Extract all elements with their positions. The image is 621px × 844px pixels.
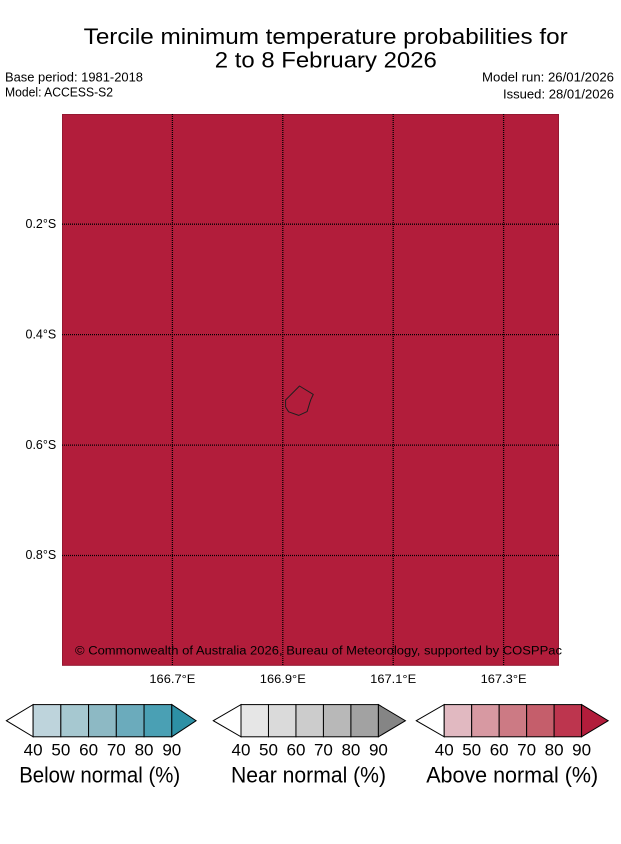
svg-text:2 to 8 February 2026: 2 to 8 February 2026: [215, 47, 437, 72]
svg-text:80: 80: [545, 741, 564, 760]
svg-text:90: 90: [369, 741, 388, 760]
svg-text:Below normal (%): Below normal (%): [19, 763, 180, 788]
svg-text:Above normal (%): Above normal (%): [426, 763, 598, 788]
svg-text:Tercile minimum temperature pr: Tercile minimum temperature probabilitie…: [84, 24, 568, 49]
svg-text:Model: ACCESS-S2: Model: ACCESS-S2: [5, 84, 113, 99]
svg-text:50: 50: [462, 741, 481, 760]
svg-text:166.9°E: 166.9°E: [260, 672, 306, 686]
svg-text:Issued: 28/01/2026: Issued: 28/01/2026: [503, 86, 614, 101]
svg-text:50: 50: [51, 741, 70, 760]
svg-text:40: 40: [232, 741, 251, 760]
svg-text:40: 40: [24, 741, 43, 760]
svg-text:70: 70: [314, 741, 333, 760]
svg-text:50: 50: [259, 741, 278, 760]
svg-text:0.8°S: 0.8°S: [26, 548, 57, 562]
svg-text:167.1°E: 167.1°E: [370, 672, 416, 686]
svg-text:0.6°S: 0.6°S: [26, 438, 57, 452]
svg-text:90: 90: [162, 741, 181, 760]
svg-text:166.7°E: 166.7°E: [149, 672, 195, 686]
svg-text:70: 70: [517, 741, 536, 760]
svg-text:90: 90: [572, 741, 591, 760]
svg-text:0.2°S: 0.2°S: [26, 217, 57, 231]
svg-text:80: 80: [135, 741, 154, 760]
svg-text:40: 40: [435, 741, 454, 760]
svg-text:Base period: 1981-2018: Base period: 1981-2018: [5, 69, 143, 84]
svg-text:60: 60: [490, 741, 509, 760]
svg-text:60: 60: [286, 741, 305, 760]
svg-text:© Commonwealth of Australia 20: © Commonwealth of Australia 2026, Bureau…: [75, 646, 562, 658]
svg-text:167.3°E: 167.3°E: [481, 672, 527, 686]
svg-text:0.4°S: 0.4°S: [26, 327, 57, 341]
svg-text:80: 80: [341, 741, 360, 760]
svg-text:70: 70: [107, 741, 126, 760]
svg-text:60: 60: [79, 741, 98, 760]
svg-text:Near normal (%): Near normal (%): [231, 763, 386, 788]
svg-text:Model run: 26/01/2026: Model run: 26/01/2026: [482, 69, 614, 84]
